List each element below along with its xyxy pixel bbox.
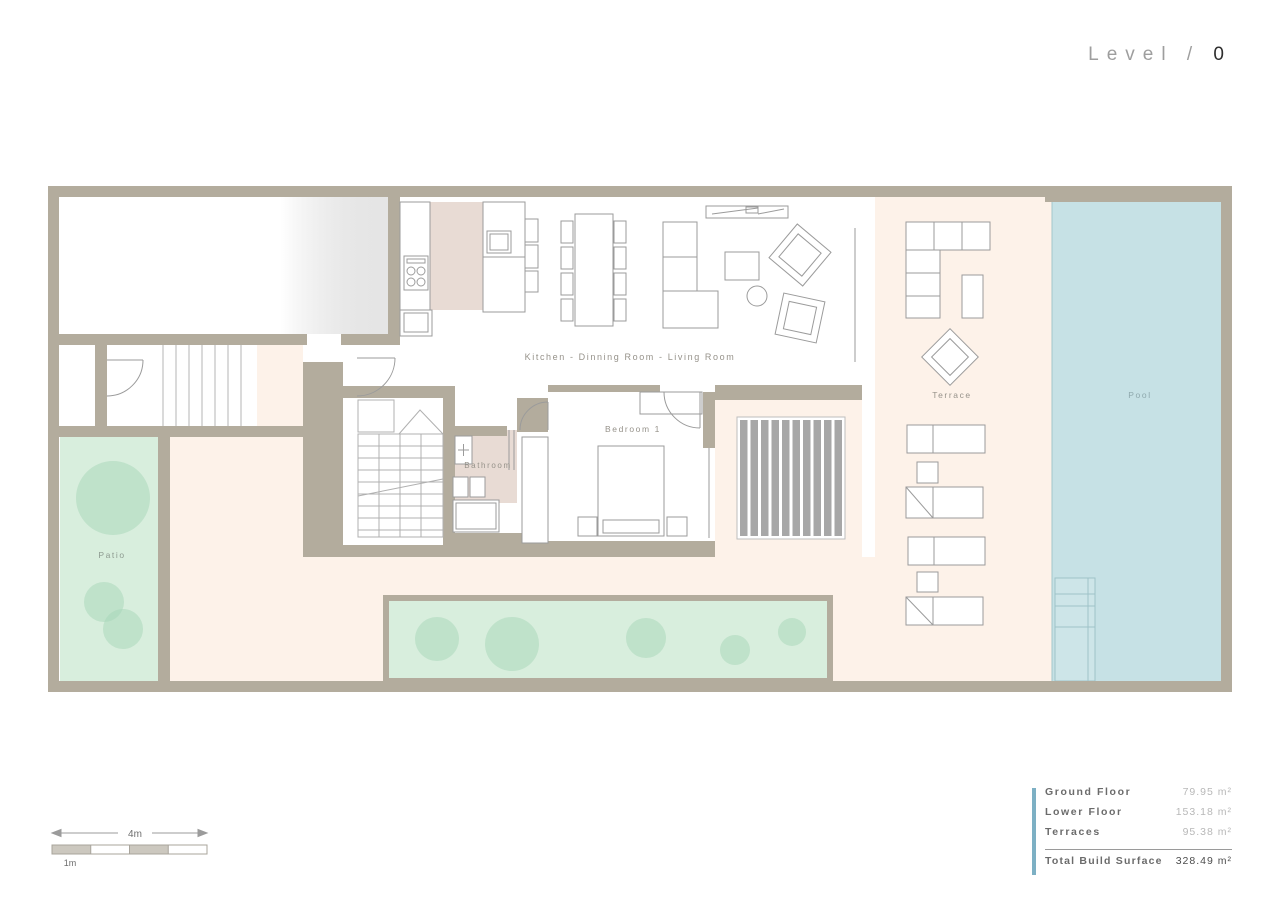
nightstand — [667, 517, 687, 536]
wall-vestibule — [95, 345, 107, 426]
area-table: Ground Floor 79.95 m² Lower Floor 153.18… — [1032, 786, 1232, 875]
wall-living-south — [715, 385, 862, 400]
dining-table — [575, 214, 613, 326]
bedroom-closet — [640, 392, 702, 414]
page: Level / 0 — [0, 0, 1280, 905]
kitchen-tile-floor — [430, 202, 483, 310]
shower — [453, 500, 499, 532]
area-value: 153.18 m² — [1176, 806, 1232, 818]
area-total-label: Total Build Surface — [1045, 855, 1163, 867]
wall-kitchen-left — [388, 196, 400, 345]
nightstand — [578, 517, 597, 536]
west-yard-floor — [170, 437, 303, 681]
garden-bush — [415, 617, 459, 661]
area-total-value: 328.49 m² — [1176, 855, 1232, 867]
label-bedroom: Bedroom 1 — [605, 424, 661, 434]
scale-total-label: 4m — [128, 829, 142, 840]
bed — [598, 446, 664, 536]
garden-strip — [383, 595, 833, 682]
kitchen-sink-cabinet — [400, 310, 432, 336]
wall-bedroom-top — [548, 385, 660, 392]
coffee-table — [725, 252, 759, 280]
pool — [1052, 202, 1221, 681]
wall-hall-chunk — [517, 398, 548, 432]
area-row-total: Total Build Surface 328.49 m² — [1045, 855, 1232, 875]
scale-arrow-right — [198, 830, 207, 837]
vestibule-door — [107, 360, 143, 396]
wall-outer-left — [48, 186, 59, 692]
house-walkway — [862, 197, 875, 557]
wall-bath-top — [450, 426, 507, 436]
scale-arrow-left — [52, 830, 61, 837]
side-table — [747, 286, 767, 306]
label-patio: Patio — [98, 550, 125, 560]
garage-door-opening — [307, 334, 341, 362]
vestibule-floor — [59, 345, 95, 426]
floor-plan: Kitchen - Dinning Room - Living Room Bed… — [0, 0, 1280, 905]
wall-bedroom-bottom — [548, 541, 715, 557]
garden-bush — [720, 635, 750, 665]
area-table-divider — [1045, 849, 1232, 850]
garden-tree — [485, 617, 539, 671]
garden-bush — [626, 618, 666, 658]
area-row-terraces: Terraces 95.38 m² — [1045, 826, 1232, 846]
entry-hall-floor — [343, 345, 443, 386]
area-label: Lower Floor — [1045, 806, 1123, 818]
bidet — [470, 477, 485, 497]
scale-segments — [52, 845, 207, 854]
area-label: Ground Floor — [1045, 786, 1131, 798]
wall-outer-right — [1221, 186, 1232, 692]
label-pool: Pool — [1128, 390, 1151, 400]
wardrobe — [522, 437, 548, 543]
wall-pool-top — [1045, 186, 1232, 202]
armchair — [775, 293, 825, 343]
label-terrace: Terrace — [932, 390, 972, 400]
scale-bar: 4m 1m — [52, 829, 207, 868]
garage-ramp-gradient — [280, 197, 388, 334]
entry-yard-floor — [257, 345, 303, 426]
wall-bedroom-right — [703, 392, 715, 448]
scale-unit-label: 1m — [64, 858, 77, 868]
wall-house-left — [303, 362, 343, 545]
wall-patio-right — [158, 430, 170, 681]
area-row-lower-floor: Lower Floor 153.18 m² — [1045, 806, 1232, 826]
area-label: Terraces — [1045, 826, 1101, 838]
wall-stair-bottom — [303, 545, 455, 557]
label-bathroom: Bathroom — [464, 461, 511, 470]
label-kitchen-living: Kitchen - Dinning Room - Living Room — [525, 352, 736, 362]
tv-sideboard — [706, 206, 788, 218]
outdoor-table — [962, 275, 983, 318]
bar-stools — [525, 219, 538, 292]
patio-tree — [76, 461, 150, 535]
area-table-accent-bar — [1032, 788, 1036, 875]
patio-bush — [103, 609, 143, 649]
pool-steps — [1055, 578, 1095, 681]
garden-bush — [778, 618, 806, 646]
wall-outer-bottom — [48, 681, 1232, 692]
stair-closet — [358, 400, 394, 432]
toilet — [453, 477, 468, 497]
bathroom-sink — [455, 436, 472, 464]
area-value: 79.95 m² — [1183, 786, 1232, 798]
wall-garage-bottom-a — [48, 334, 307, 345]
kitchen-island — [483, 202, 525, 312]
wall-entry-bottom — [48, 426, 303, 437]
cooktop — [404, 256, 428, 290]
area-row-ground-floor: Ground Floor 79.95 m² — [1045, 786, 1232, 806]
area-value: 95.38 m² — [1183, 826, 1232, 838]
pergola-deck — [737, 417, 845, 539]
